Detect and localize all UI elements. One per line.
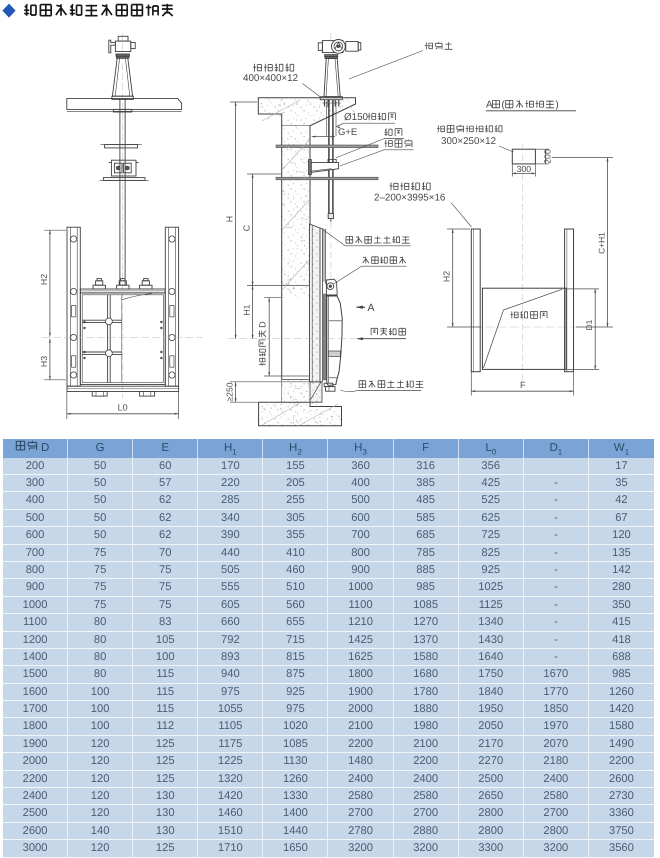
svg-text:H1: H1 xyxy=(242,304,252,315)
svg-text:H2: H2 xyxy=(442,271,452,282)
svg-text:A: A xyxy=(486,99,493,110)
svg-text:C+H1: C+H1 xyxy=(596,232,606,254)
svg-text:): ) xyxy=(555,99,558,110)
svg-text:300: 300 xyxy=(516,164,531,174)
svg-text:(: ( xyxy=(502,99,506,110)
svg-text:D: D xyxy=(258,321,268,328)
svg-text:D: D xyxy=(41,442,49,454)
svg-text:H2: H2 xyxy=(39,274,49,285)
svg-text:400×400×12: 400×400×12 xyxy=(243,73,298,84)
svg-text:2–200×3995×16: 2–200×3995×16 xyxy=(374,192,446,203)
svg-text:G+E: G+E xyxy=(338,127,357,138)
svg-text:≥250: ≥250 xyxy=(225,382,235,401)
svg-text:C: C xyxy=(242,224,252,231)
svg-text:H: H xyxy=(225,216,235,222)
svg-text:H3: H3 xyxy=(39,356,49,367)
svg-text:L0: L0 xyxy=(118,403,128,413)
svg-text:200: 200 xyxy=(543,149,553,164)
svg-text:A: A xyxy=(368,302,375,314)
svg-text:F: F xyxy=(520,380,526,390)
svg-text:D1: D1 xyxy=(584,319,594,330)
svg-text:300×250×12: 300×250×12 xyxy=(441,136,496,147)
svg-text:Ø150: Ø150 xyxy=(344,112,369,123)
